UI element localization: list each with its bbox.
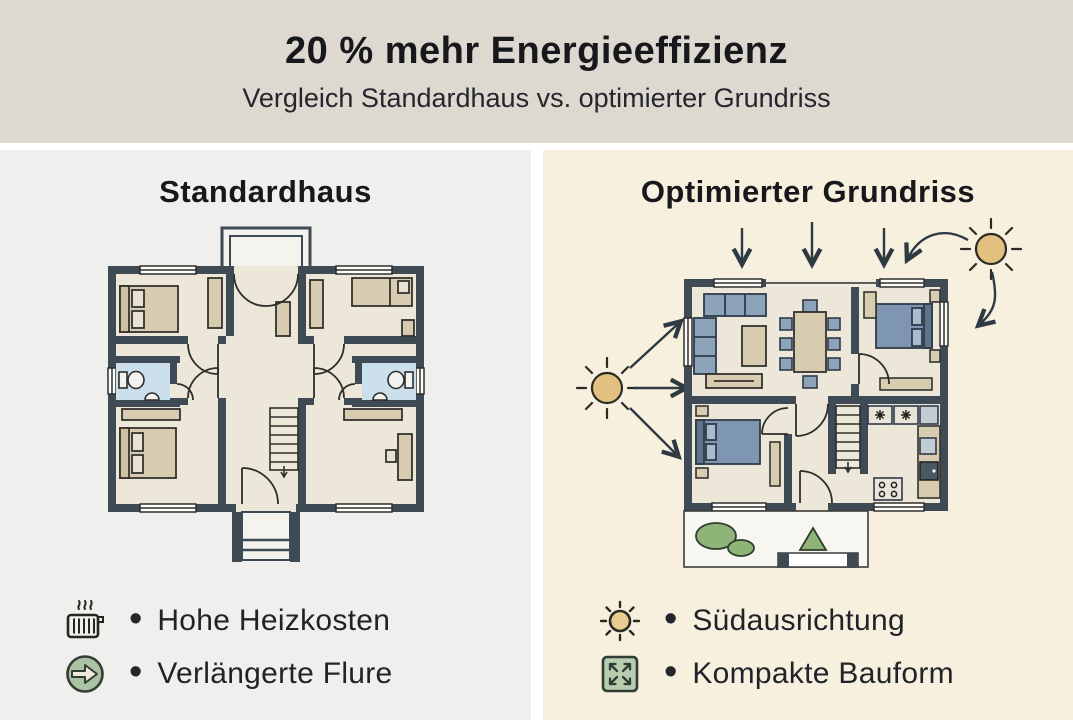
bathroom-right [362, 363, 416, 400]
terrace [684, 511, 868, 567]
sun-icon [597, 599, 643, 643]
wardrobe [344, 409, 402, 420]
arrow-right-circle-icon [62, 653, 108, 695]
sofa-left [694, 318, 716, 374]
bullet-label: Kompakte Bauform [692, 657, 954, 691]
stove [874, 478, 902, 500]
page-subtitle: Vergleich Standardhaus vs. optimierter G… [242, 83, 830, 114]
bullet-dot: • [664, 653, 677, 691]
standardhaus-bullets: • Hohe Heizkosten • Verlängerte Flure [62, 599, 393, 696]
sink [920, 438, 936, 454]
bed-top-right [352, 278, 412, 306]
entrance-steps-bottom [232, 512, 300, 562]
sideboard [706, 374, 762, 388]
standardhaus-title: Standardhaus [0, 174, 531, 210]
standardhaus-floorplan-drawing [106, 222, 426, 562]
bullet-label: Verlängerte Flure [157, 657, 392, 691]
bullet-label: Hohe Heizkosten [157, 604, 390, 638]
sofa-top [704, 294, 766, 316]
bullet-dot: • [129, 600, 142, 638]
bed-bottom-left [120, 428, 176, 478]
standardhaus-panel: Standardhaus [0, 150, 531, 720]
bullet-suedausrichtung: • Südausrichtung [597, 599, 954, 643]
bullet-kompakte-bauform: • Kompakte Bauform [597, 652, 954, 696]
sun-icon-left [577, 323, 684, 455]
coffee-table [742, 326, 766, 366]
hall-closet [276, 302, 290, 336]
wardrobe [310, 280, 323, 328]
south-light-arrows [742, 222, 884, 262]
bullet-verlaengerte-flure: • Verlängerte Flure [62, 652, 393, 696]
optimierter-grundriss-title: Optimierter Grundriss [543, 174, 1073, 210]
expand-arrows-icon [597, 653, 643, 695]
sun-straight-arrows [630, 323, 684, 455]
side-table [402, 320, 414, 336]
bullet-hohe-heizkosten: • Hohe Heizkosten [62, 599, 393, 643]
page-title: 20 % mehr Energieeffizienz [285, 30, 788, 73]
optimiert-bullets: • Südausrichtung • Kompakte Bauform [597, 599, 954, 696]
optimierter-grundriss-drawing [544, 206, 1072, 581]
entrance-porch-top [222, 228, 310, 268]
radiator-icon [62, 597, 108, 645]
wardrobe [122, 409, 180, 420]
optimierter-grundriss-panel: Optimierter Grundriss [543, 150, 1073, 720]
bed-top-left [120, 286, 178, 332]
stairs [836, 406, 860, 472]
bullet-label: Südausrichtung [692, 604, 905, 638]
header-banner: 20 % mehr Energieeffizienz Vergleich Sta… [0, 0, 1073, 143]
bed-bottom-left [696, 420, 760, 464]
terrace-steps [778, 553, 858, 567]
bed-top-right [876, 304, 932, 348]
wardrobe [208, 278, 222, 328]
bathroom-left [116, 363, 170, 400]
bullet-dot: • [664, 600, 677, 638]
stairs [270, 408, 298, 477]
bullet-dot: • [129, 653, 142, 691]
